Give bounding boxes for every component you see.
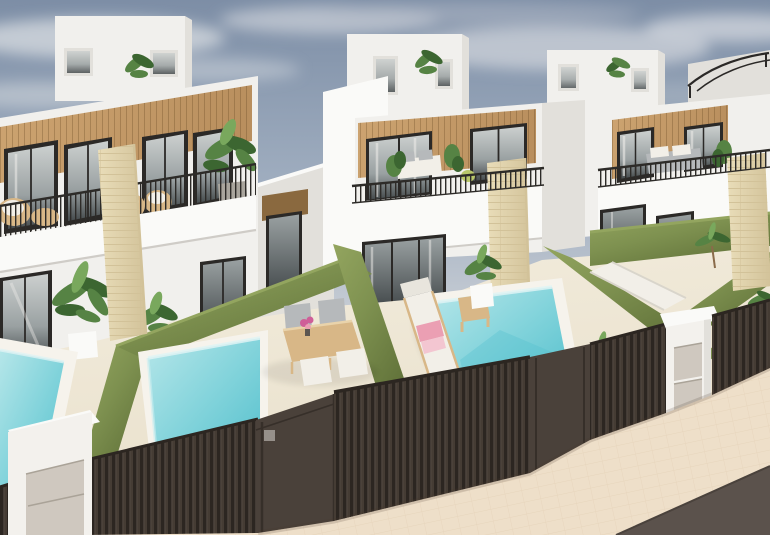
cloud-shadow bbox=[320, 3, 640, 25]
rooftop-window-glass bbox=[634, 71, 646, 89]
meter-panel bbox=[674, 343, 702, 381]
rooftop-window-glass bbox=[561, 67, 576, 88]
villa-render-canvas bbox=[0, 0, 770, 535]
villa-render-image bbox=[0, 0, 770, 535]
rooftop-box-side bbox=[462, 34, 469, 118]
rooftop-window-glass bbox=[438, 62, 450, 86]
dining-chair bbox=[336, 348, 368, 378]
stone-column bbox=[727, 153, 770, 291]
rooftop-window-glass bbox=[153, 53, 175, 74]
plant-pot bbox=[470, 283, 494, 309]
utility-cabinet bbox=[8, 410, 100, 535]
dining-chair bbox=[300, 356, 332, 386]
gate-keypad bbox=[264, 430, 275, 441]
side-step-wall bbox=[542, 100, 585, 252]
rooftop-window-glass bbox=[67, 51, 90, 73]
